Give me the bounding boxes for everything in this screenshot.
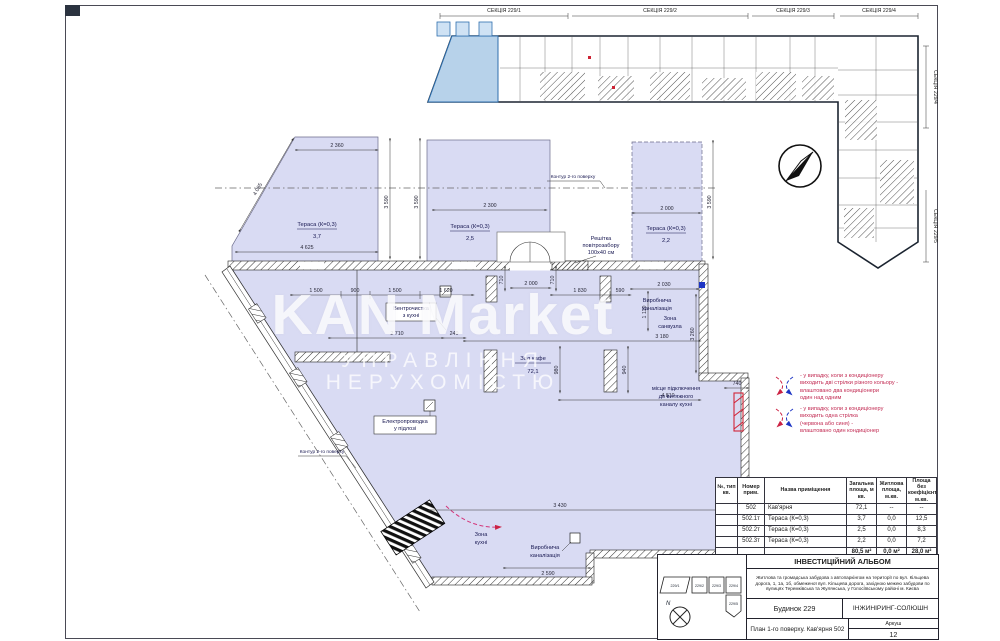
prod-sewer-label: Виробнича (531, 545, 560, 551)
drain-box (570, 533, 580, 543)
drawing-sheet: СЕКЦІЯ 229/1 СЕКЦІЯ 229/2 СЕКЦІЯ 229/3 С… (0, 0, 1000, 641)
section-label-right: СЕКЦІЯ 229/4 (932, 70, 938, 104)
svg-text:980: 980 (554, 366, 560, 375)
svg-text:з кухні: з кухні (403, 313, 420, 319)
building-number: Будинок 229 (747, 599, 843, 618)
legend-arrows (776, 377, 793, 426)
keyplan-highlight-cafe (428, 36, 498, 102)
svg-text:710: 710 (550, 276, 556, 285)
kitchen-zone-label: кухні (475, 540, 487, 546)
svg-text:940: 940 (622, 366, 628, 375)
svg-text:229/5: 229/5 (729, 602, 738, 606)
terrace-3-area: 2,2 (662, 238, 670, 244)
project-description: Житлова та громадська забудова з автопар… (747, 569, 938, 599)
title-block: N 229/1 229/2 229/3 229/4 229/5 ІНВЕСТИЦ… (657, 554, 939, 640)
table-row: 502Кав'ярня 72,1---- (716, 503, 937, 514)
section-label: СЕКЦІЯ 229/3 (776, 8, 810, 14)
keyplan-red-mark (588, 56, 591, 59)
keyplan-terrace-tab (437, 22, 450, 36)
table-header-row: №, тип кв. Номер прим. Назва приміщення … (716, 478, 937, 504)
svg-text:3 430: 3 430 (553, 503, 566, 509)
col-total: Загальна площа, м кв. (847, 478, 877, 504)
wc-zone-label: санвузла (658, 324, 682, 330)
company-name: ІНЖИНІРИНГ-СОЛЮШН (843, 599, 938, 618)
svg-text:2 590: 2 590 (541, 571, 554, 577)
svg-text:2 000: 2 000 (660, 206, 673, 212)
terrace-3-name: Тераса (К=0,3) (646, 226, 685, 232)
north-compass (779, 145, 821, 187)
svg-text:229/1: 229/1 (671, 584, 680, 588)
table-row: 502.2тТераса (К=0,3) 2,50,08,3 (716, 525, 937, 536)
kitchen-zone-label: Зона (475, 532, 489, 538)
svg-text:Електропроводка: Електропроводка (382, 419, 428, 425)
hall-area: 72,1 (527, 369, 538, 375)
svg-text:740: 740 (733, 381, 742, 387)
svg-text:3 260: 3 260 (690, 327, 696, 340)
svg-text:у підлозі: у підлозі (394, 426, 416, 432)
cafe-room-area (230, 266, 748, 582)
keyplan-terrace-tab (479, 22, 492, 36)
air-intake-grille (552, 261, 588, 270)
svg-text:1 830: 1 830 (573, 288, 586, 294)
sheet-number: 12 (849, 629, 938, 639)
entrance (497, 232, 565, 262)
svg-text:240: 240 (450, 331, 459, 337)
sheet-title: План 1-го поверху. Кав'ярня 502 (747, 619, 849, 639)
wc-zone-label: Зона (664, 316, 678, 322)
col-living: Житлова площа, м.кв. (877, 478, 907, 504)
terraces (232, 137, 702, 262)
svg-text:2 710: 2 710 (390, 331, 403, 337)
grille-callout: Решітка (591, 236, 612, 242)
miniplan-section-5 (726, 595, 741, 617)
svg-text:2 300: 2 300 (483, 203, 496, 209)
svg-text:229/3: 229/3 (712, 584, 721, 588)
svg-text:3 590: 3 590 (707, 195, 713, 208)
svg-text:Вентрочистка: Вентрочистка (393, 306, 430, 312)
ac-unit-marker (699, 282, 705, 288)
terrace-3 (632, 142, 702, 262)
ac-legend-1: - у випадку, коли з кондиціонеру виходит… (800, 373, 935, 402)
col-name: Назва приміщення (765, 478, 847, 504)
terrace-2-name: Тераса (К=0,3) (450, 224, 489, 230)
ac-legend-2: - у випадку, коли з кондиціонеру виходит… (800, 406, 935, 435)
north-letter: N (666, 601, 671, 607)
area-table: №, тип кв. Номер прим. Назва приміщення … (715, 477, 937, 559)
duct-callout: до витяжного (659, 394, 694, 400)
section-label: СЕКЦІЯ 229/1 (487, 8, 521, 14)
duct-callout: каналу кухні (660, 402, 692, 408)
sheet-label: Аркуш (849, 619, 938, 629)
svg-text:1 620: 1 620 (439, 288, 452, 294)
section-label-right: СЕКЦІЯ 229/5 (932, 209, 938, 243)
svg-text:Контур 2-го поверху: Контур 2-го поверху (551, 174, 596, 180)
terrace-1-area: 3,7 (313, 234, 321, 240)
svg-text:229/4: 229/4 (729, 584, 738, 588)
svg-text:590: 590 (616, 288, 625, 294)
grille-callout: 100х40 см (588, 250, 615, 256)
svg-text:710: 710 (499, 276, 505, 285)
table-row: 502.3тТераса (К=0,3) 2,20,07,2 (716, 536, 937, 547)
svg-text:900: 900 (351, 288, 360, 294)
svg-text:1 500: 1 500 (309, 288, 322, 294)
svg-text:3 590: 3 590 (414, 195, 420, 208)
table-row: 502.1тТераса (К=0,3) 3,70,012,5 (716, 514, 937, 525)
svg-text:2 360: 2 360 (330, 143, 343, 149)
prod-sewer-label: каналізація (530, 553, 560, 559)
title-block-miniplan: N 229/1 229/2 229/3 229/4 229/5 (658, 555, 747, 639)
album-title: ІНВЕСТИЦІЙНИЙ АЛЬБОМ (747, 555, 938, 569)
terrace-1 (232, 137, 378, 262)
svg-text:3 590: 3 590 (384, 195, 390, 208)
miniplan-compass: N (666, 601, 690, 627)
svg-text:2 000: 2 000 (524, 281, 537, 287)
keyplan-terrace-tab (456, 22, 469, 36)
col-type: №, тип кв. (716, 478, 738, 504)
hall-name: Зал кафе (520, 356, 546, 362)
svg-text:229/2: 229/2 (695, 584, 704, 588)
section-label: СЕКЦІЯ 229/2 (643, 8, 677, 14)
terrace-1-name: Тераса (К=0,3) (297, 222, 336, 228)
contour-label-top: Контур 2-го поверху (547, 174, 605, 188)
grille-callout: повітрозабору (583, 243, 620, 249)
svg-text:4 625: 4 625 (300, 245, 313, 251)
section-label: СЕКЦІЯ 229/4 (862, 8, 896, 14)
col-nocoef: Площа без коефіцієнту, м.кв. (907, 478, 937, 504)
keyplan-red-mark (612, 86, 615, 89)
svg-text:1 500: 1 500 (388, 288, 401, 294)
svg-text:Контур 2-го поверху: Контур 2-го поверху (300, 449, 345, 455)
col-number: Номер прим. (738, 478, 765, 504)
duct-callout: місце підключення (652, 386, 700, 392)
terrace-2-area: 2,5 (466, 236, 474, 242)
svg-text:3 180: 3 180 (655, 334, 668, 340)
prod-sewer-label: каналізація (642, 306, 672, 312)
prod-sewer-label: Виробнича (643, 298, 672, 304)
svg-text:2 030: 2 030 (657, 282, 670, 288)
